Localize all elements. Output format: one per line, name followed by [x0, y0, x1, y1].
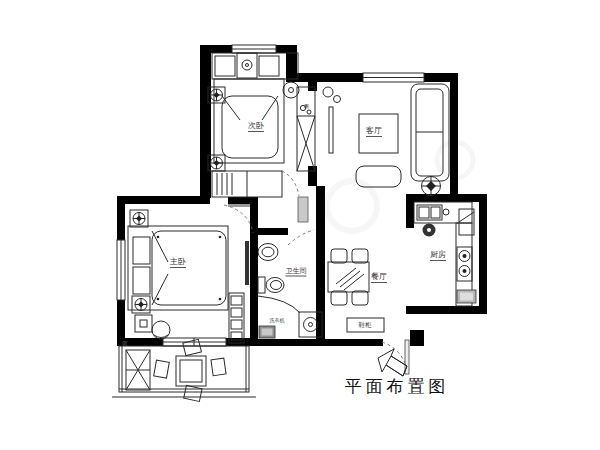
room-label-living-room: 客厅 [366, 127, 382, 137]
plan-title: 平面布置图 [345, 375, 450, 398]
living-room-furniture [323, 84, 449, 196]
room-label-master-bedroom: 主卧 [170, 258, 186, 268]
ceiling-lamp-icon [422, 177, 441, 196]
room-label-bathroom: 卫生间 [286, 268, 307, 277]
room-label-dining-room: 餐厅 [371, 273, 387, 283]
dining-furniture [328, 249, 384, 332]
washing-machine-label: 洗衣机 [270, 318, 285, 323]
room-label-secondary-bedroom: 次卧 [248, 122, 264, 132]
balcony [112, 339, 256, 401]
shoe-cabinet-label: 鞋柜 [359, 322, 372, 329]
master-bedroom-furniture [128, 210, 249, 343]
bathroom-furniture [258, 244, 322, 339]
floorplan-drawing [0, 0, 600, 450]
floorplan-page: 次卧 客厅 主卧 卫生间 餐厅 厨房 鞋柜 洗衣机 衣柜 空调 平面布置图 [0, 0, 600, 450]
room-label-kitchen: 厨房 [430, 251, 446, 261]
